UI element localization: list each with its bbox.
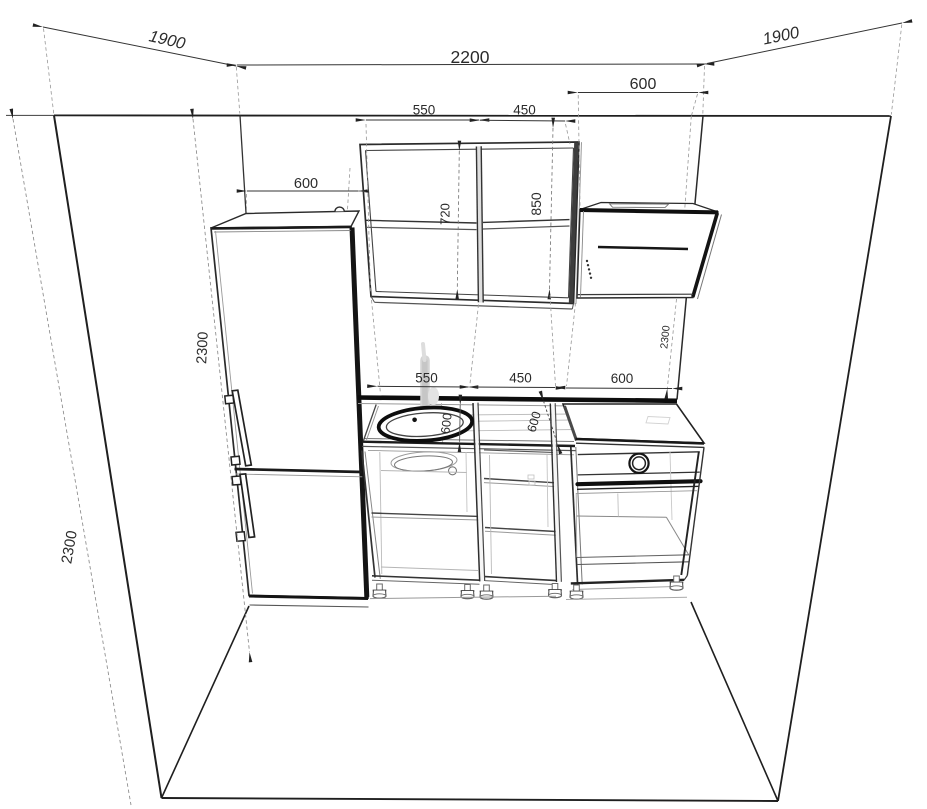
- svg-text:600: 600: [438, 412, 454, 434]
- svg-text:720: 720: [438, 203, 453, 225]
- svg-text:450: 450: [513, 103, 536, 118]
- svg-text:2200: 2200: [451, 47, 490, 67]
- svg-text:2300: 2300: [194, 331, 212, 364]
- svg-text:600: 600: [630, 76, 657, 93]
- svg-text:600: 600: [611, 371, 634, 386]
- svg-text:850: 850: [528, 192, 544, 216]
- svg-text:550: 550: [415, 371, 438, 386]
- svg-text:2300: 2300: [658, 325, 672, 350]
- svg-text:550: 550: [413, 103, 436, 118]
- svg-text:450: 450: [509, 371, 532, 386]
- svg-text:600: 600: [294, 176, 318, 192]
